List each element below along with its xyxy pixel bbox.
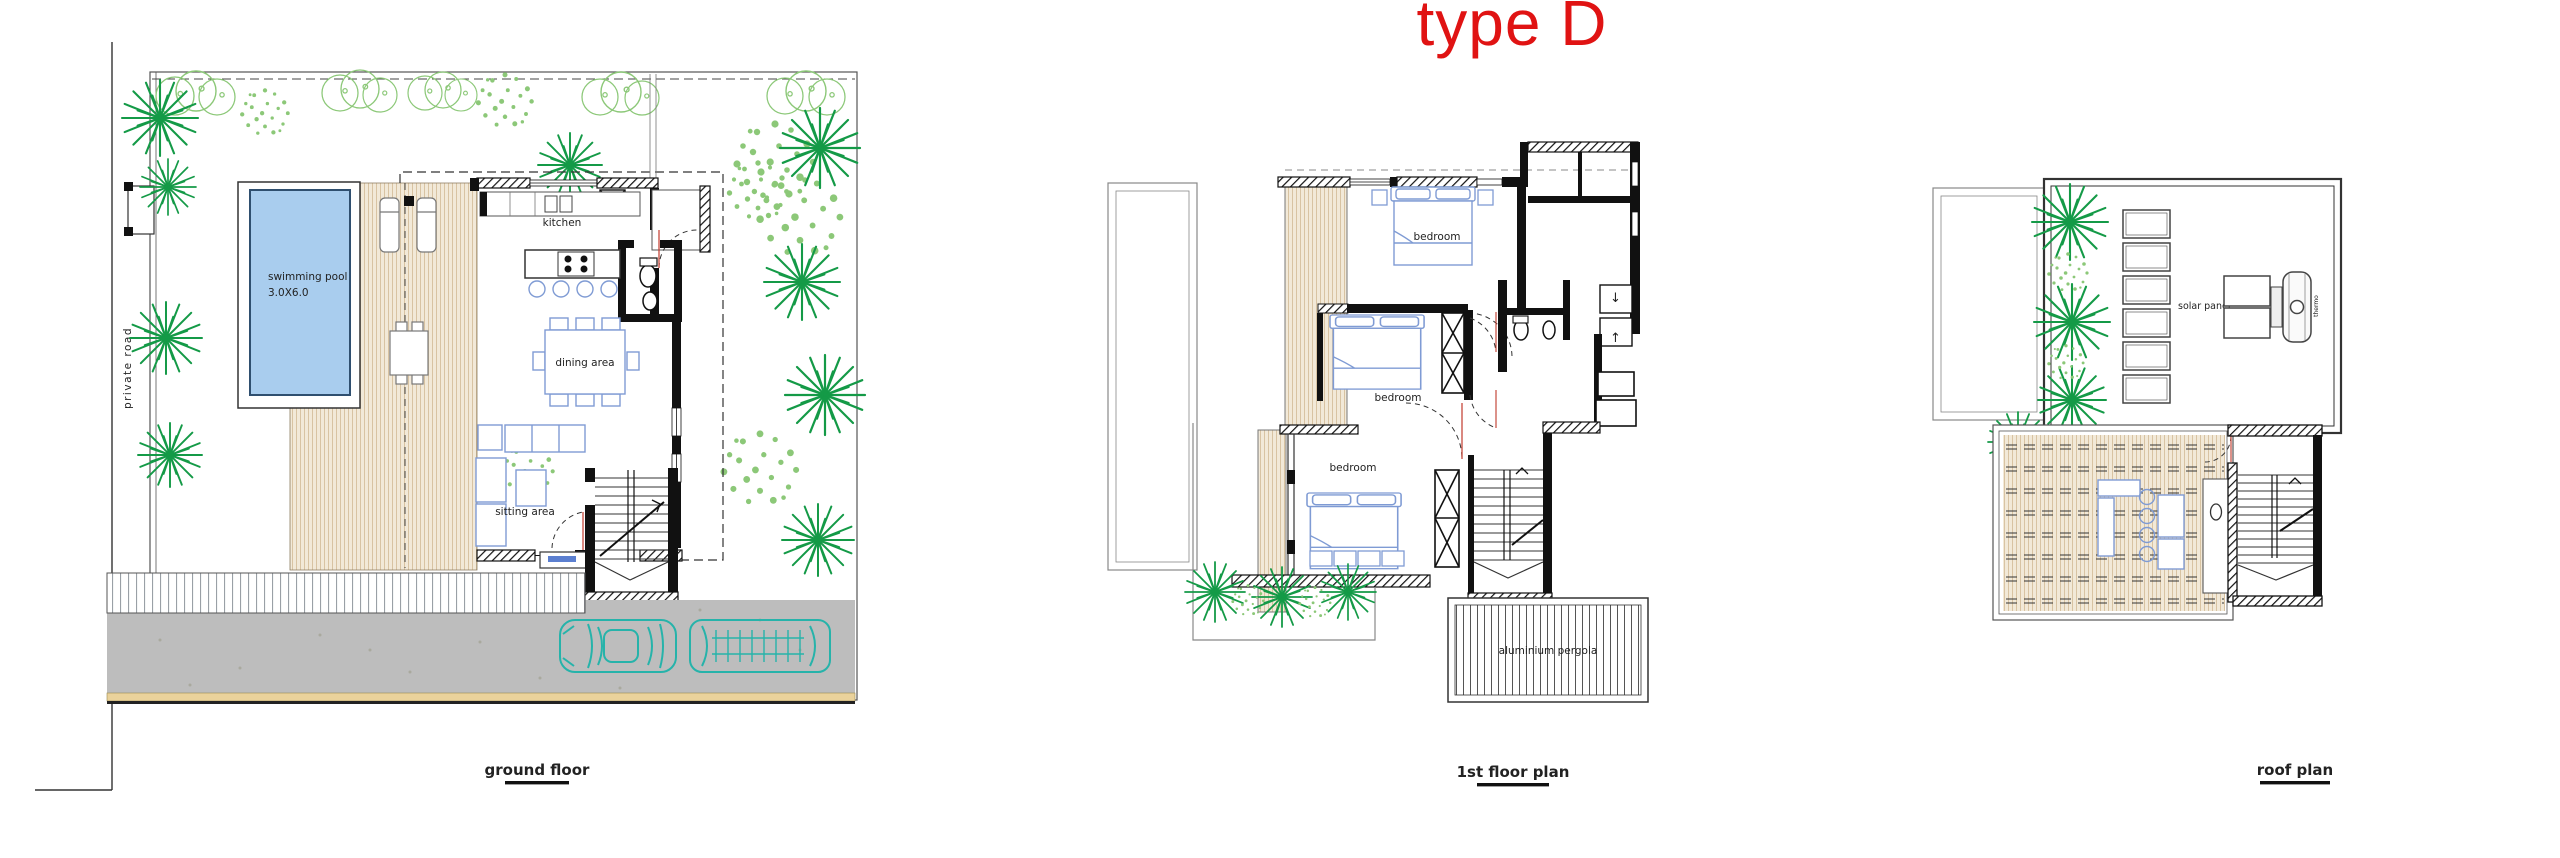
tv xyxy=(548,556,576,562)
balcony-palm xyxy=(1185,562,1245,622)
kitchen-fixtures xyxy=(480,192,640,297)
dining-label: dining area xyxy=(555,357,614,369)
curb-strip xyxy=(107,693,855,701)
bedroom2-label: bedroom xyxy=(1375,392,1422,404)
floorplan-sheet: type D xyxy=(0,0,2560,858)
pergola-label: aluminium pergola xyxy=(1499,645,1598,657)
closet-2 xyxy=(1442,313,1464,393)
ground-floor-plan: private road xyxy=(35,42,865,790)
lower-roof-outline xyxy=(1108,183,1197,570)
sitting-set xyxy=(476,425,585,546)
closet-3 xyxy=(1435,470,1459,567)
floorplan-drawing: private road xyxy=(0,0,2560,858)
first-floor-caption: 1st floor plan xyxy=(1457,763,1570,781)
water-heater-label: thermo xyxy=(2313,295,2320,317)
bed-1 xyxy=(1391,187,1475,265)
kitchen-label: kitchen xyxy=(543,217,582,229)
bed-2 xyxy=(1330,315,1424,389)
roof-stairs xyxy=(2228,425,2322,606)
arrow-up-icon: ↑ xyxy=(1610,331,1621,346)
arrow-down-icon: ↓ xyxy=(1610,291,1621,306)
side-roof-outline xyxy=(1933,188,2045,420)
ground-floor-caption: ground floor xyxy=(485,761,590,779)
first-floor-stairs xyxy=(1468,433,1552,605)
roof-caption: roof plan xyxy=(2257,761,2333,779)
walkway-stripes xyxy=(107,573,585,613)
bedroom3-label: bedroom xyxy=(1330,462,1377,474)
outdoor-table xyxy=(390,322,428,384)
pool-label-2: 3.0X6.0 xyxy=(268,287,309,299)
balcony-palm xyxy=(1320,564,1376,620)
first-floor-plan: bedroom bedroom xyxy=(1108,142,1648,786)
sitting-label: sitting area xyxy=(495,506,555,518)
gate xyxy=(128,186,154,234)
driveway xyxy=(107,613,855,693)
pool-label-1: swimming pool xyxy=(268,271,347,283)
first-caption-underline xyxy=(1477,783,1549,786)
bubble-trees xyxy=(156,70,845,115)
private-road-label: private road xyxy=(122,327,134,409)
ground-caption-underline xyxy=(505,781,569,784)
terrace-planter xyxy=(2203,479,2229,593)
solar-panel-label: solar panel xyxy=(2178,301,2231,312)
service-core: ↓ ↑ xyxy=(1470,152,1636,433)
roof-plan: solar panel thermo xyxy=(1933,179,2341,784)
roof-terrace xyxy=(1993,425,2233,620)
roof-caption-underline xyxy=(2260,781,2330,784)
bedroom1-label: bedroom xyxy=(1414,231,1461,243)
